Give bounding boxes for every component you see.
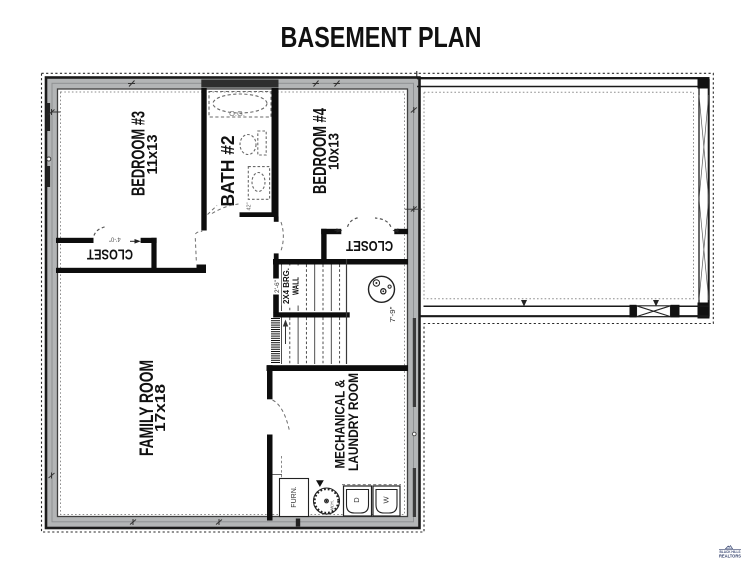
svg-text:CLOSET: CLOSET	[87, 246, 133, 263]
svg-text:4'-0": 4'-0"	[109, 235, 121, 241]
svg-text:10x13: 10x13	[325, 133, 342, 170]
svg-text:CLOSET: CLOSET	[346, 237, 393, 254]
svg-text:11x13: 11x13	[144, 135, 161, 175]
svg-text:BASEMENT PLAN: BASEMENT PLAN	[281, 22, 482, 54]
svg-text:17x18: 17x18	[152, 384, 169, 432]
svg-text:W: W	[382, 496, 391, 504]
svg-text:2'-6": 2'-6"	[275, 280, 281, 293]
svg-text:O.G.: O.G.	[229, 109, 245, 118]
svg-text:WALL: WALL	[291, 277, 300, 295]
svg-text:BATH #2: BATH #2	[218, 136, 238, 207]
svg-text:42": 42"	[247, 202, 253, 210]
svg-text:7'-9": 7'-9"	[388, 306, 397, 322]
svg-text:D: D	[352, 497, 361, 503]
svg-text:W.H.: W.H.	[330, 500, 335, 510]
svg-text:REALTORS: REALTORS	[719, 553, 741, 558]
svg-text:2X4 BRG.: 2X4 BRG.	[282, 268, 291, 304]
svg-text:LAUNDRY ROOM: LAUNDRY ROOM	[346, 373, 361, 471]
svg-text:FURN.: FURN.	[291, 486, 298, 507]
